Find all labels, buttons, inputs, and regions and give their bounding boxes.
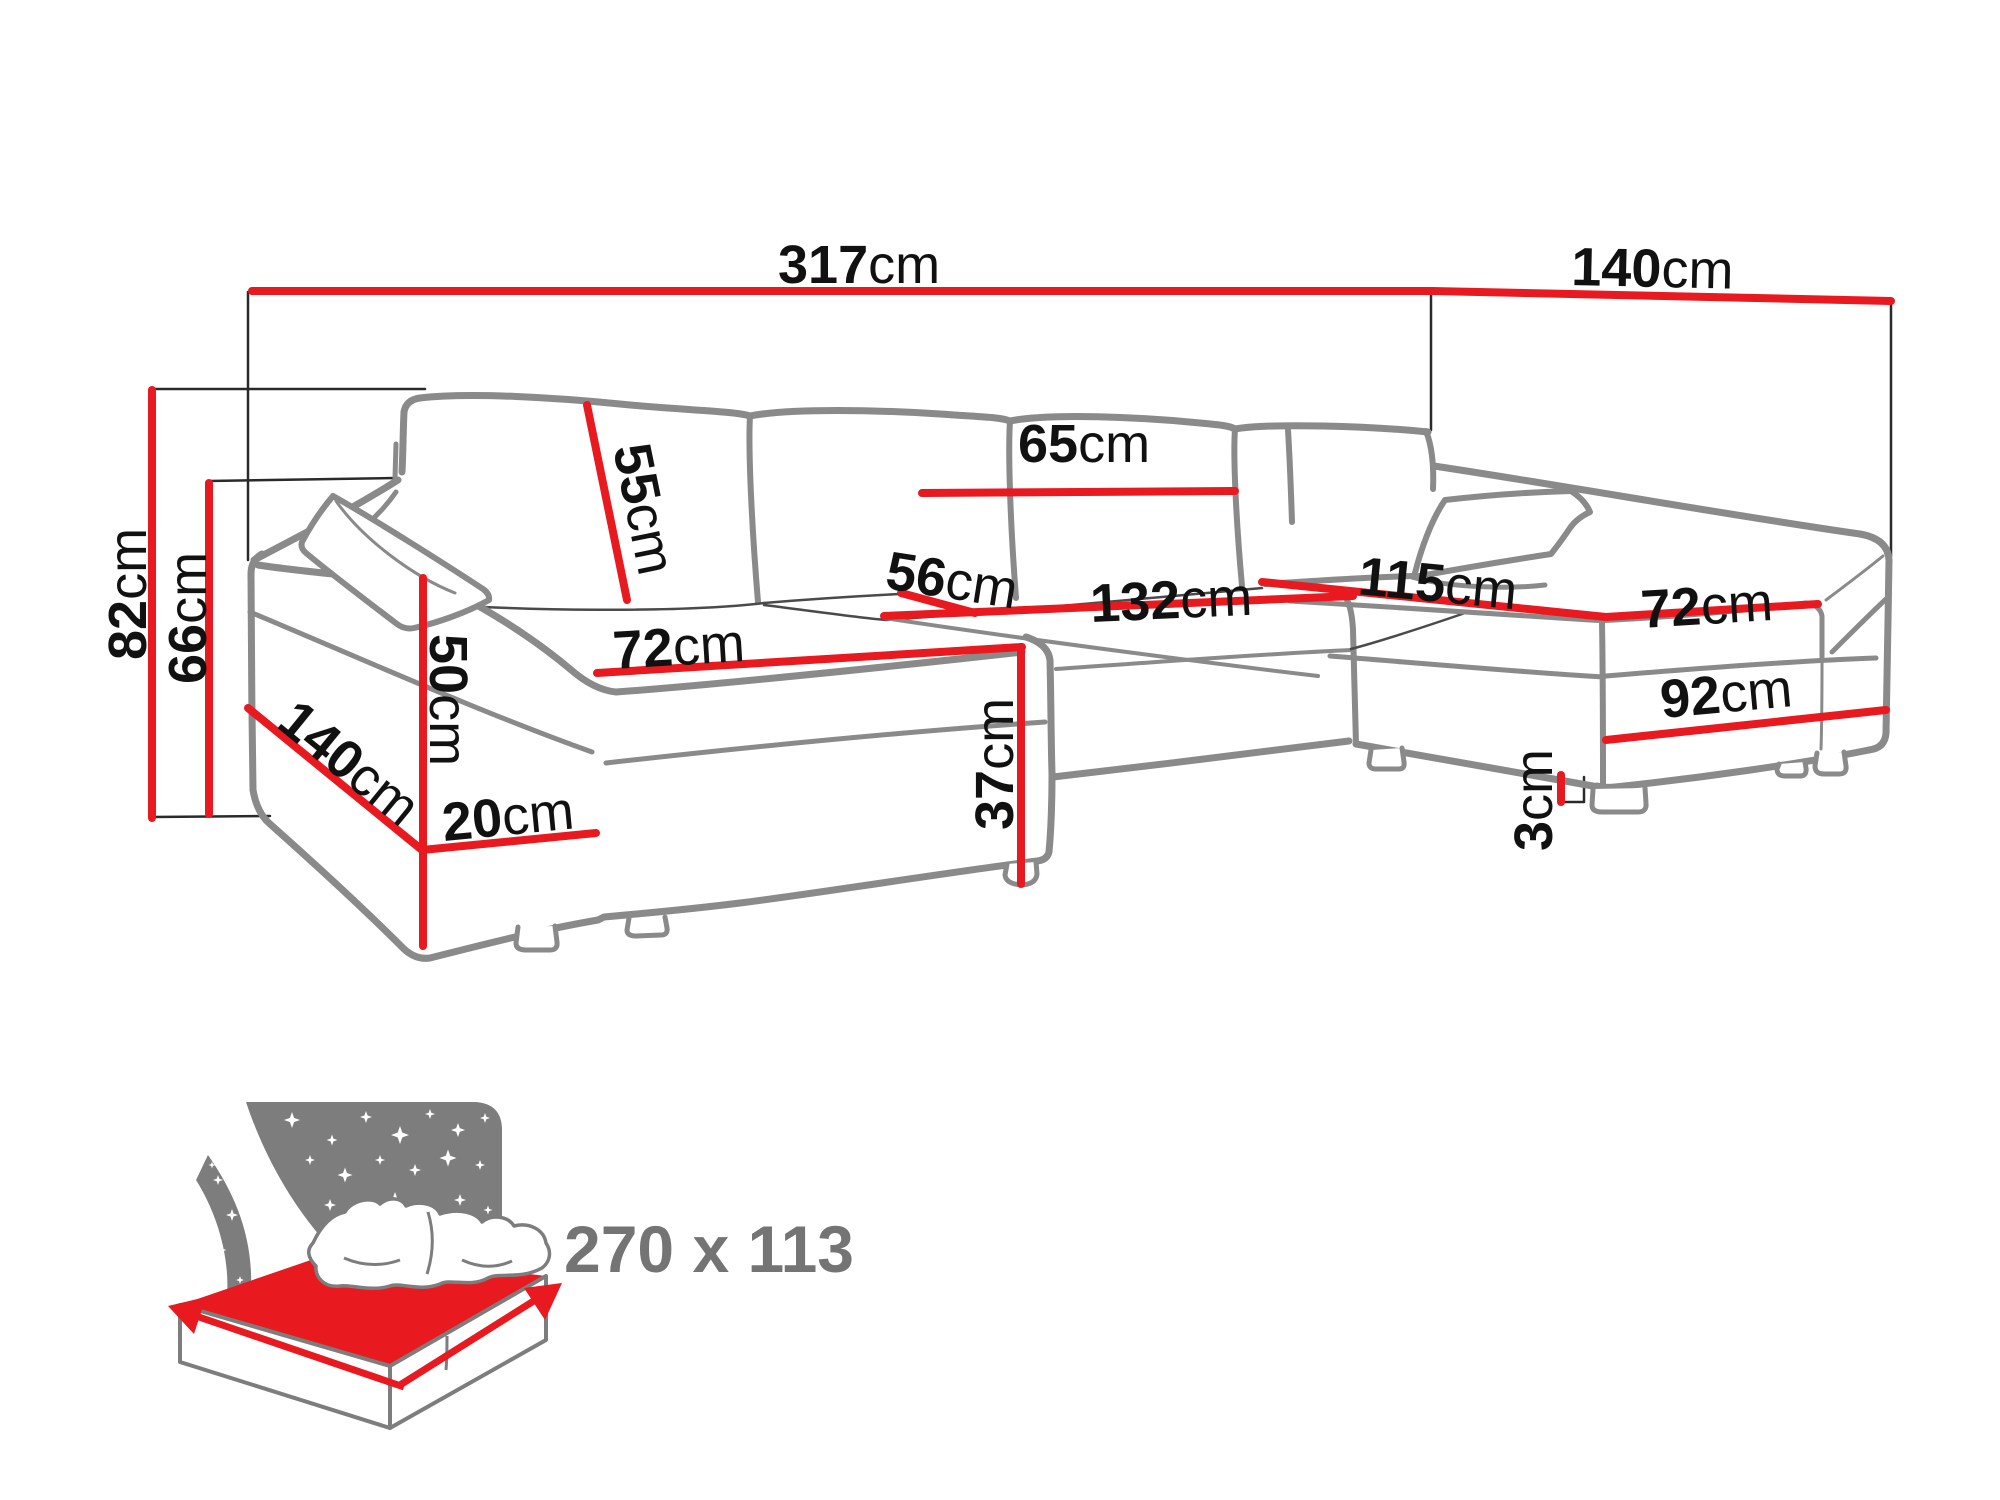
svg-text:55cm: 55cm: [601, 438, 686, 579]
svg-text:3cm: 3cm: [1504, 749, 1564, 851]
svg-text:132cm: 132cm: [1089, 567, 1254, 634]
svg-text:317cm: 317cm: [778, 235, 940, 295]
svg-text:72cm: 72cm: [611, 613, 746, 681]
svg-text:65cm: 65cm: [1018, 414, 1150, 474]
svg-text:140cm: 140cm: [1571, 237, 1734, 301]
svg-text:66cm: 66cm: [158, 552, 218, 684]
svg-text:20cm: 20cm: [439, 781, 576, 853]
svg-text:270 x 113: 270 x 113: [564, 1212, 854, 1286]
svg-text:82cm: 82cm: [98, 528, 158, 660]
svg-text:140cm: 140cm: [267, 689, 431, 838]
svg-text:92cm: 92cm: [1658, 658, 1795, 730]
svg-text:56cm: 56cm: [882, 541, 1022, 621]
svg-text:37cm: 37cm: [965, 698, 1025, 830]
svg-text:50cm: 50cm: [418, 634, 478, 766]
svg-text:72cm: 72cm: [1639, 572, 1774, 640]
